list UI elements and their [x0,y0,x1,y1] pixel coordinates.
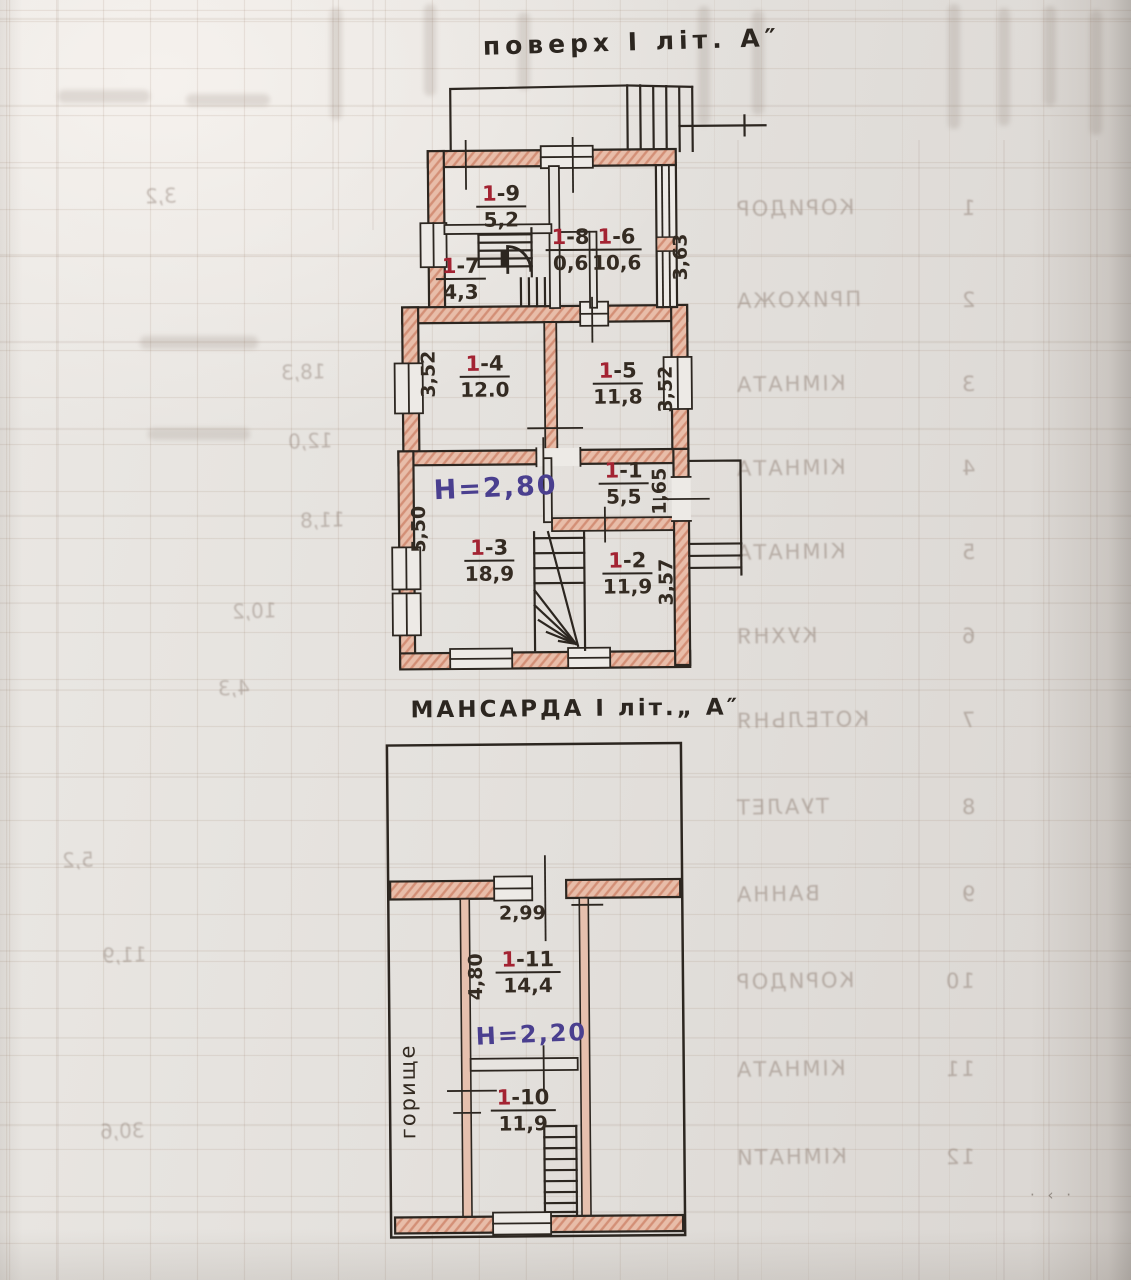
window [541,146,593,168]
ceiling-height-floor1: H=2,80 [433,470,558,506]
dimension-5-50: 5,50 [408,494,431,564]
staircase-attic [544,1126,577,1218]
room-label-1-7: 1-7 4,3 [436,255,486,303]
room-label-1-11: 1-11 14,4 [495,948,560,997]
scanned-floor-plan-page: КОРИДОР1 ПРИХОЖА2 КІМНАТА3 КІМНАТА4 КІМН… [0,0,1131,1280]
attic-side-label: горище [396,1031,419,1151]
window [450,648,512,669]
floor1-top-porch [450,84,766,153]
window [393,593,421,635]
dimension-3-57: 3,57 [655,547,678,617]
dimension-3-52-left: 3,52 [417,339,440,409]
hall-steps [521,278,545,306]
window [493,1212,551,1235]
room-label-1-4: 1-4 12.0 [460,352,510,400]
floor-plans: поверх I літ. А″ МАНСАРДА I літ.„ А″ 1-9… [0,0,1131,1285]
attic-partition [471,1046,578,1091]
plan-linework [0,0,1131,1285]
floor1-plan [388,84,770,669]
attic-mid-wall [390,855,681,942]
attic-title: МАНСАРДА I літ.„ А″ [410,694,740,723]
ceiling-height-attic: H=2,20 [475,1018,588,1051]
staircase-floor1 [534,532,585,650]
window [568,648,610,668]
dimension-3-63: 3,63 [669,222,692,292]
attic-bottom-wall [395,1211,683,1236]
dimension-1-65: 1,65 [648,456,671,526]
window [494,876,532,900]
dimension-3-52-right: 3,52 [655,354,678,424]
room-label-1-6: 1-6 10,6 [591,225,641,273]
dimension-2-99: 2,99 [492,902,552,925]
dimension-4-80: 4,80 [465,942,488,1012]
room-label-1-5: 1-5 11,8 [593,359,643,407]
room-label-1-3: 1-3 18,9 [464,536,514,584]
room-label-1-1: 1-1 5,5 [598,459,648,507]
room-label-1-9: 1-9 5,2 [476,182,526,230]
room-label-1-10: 1-10 11,9 [491,1086,556,1135]
room-label-1-2: 1-2 11,9 [602,549,652,597]
room-label-1-8: 1-8 0,6 [545,226,595,274]
